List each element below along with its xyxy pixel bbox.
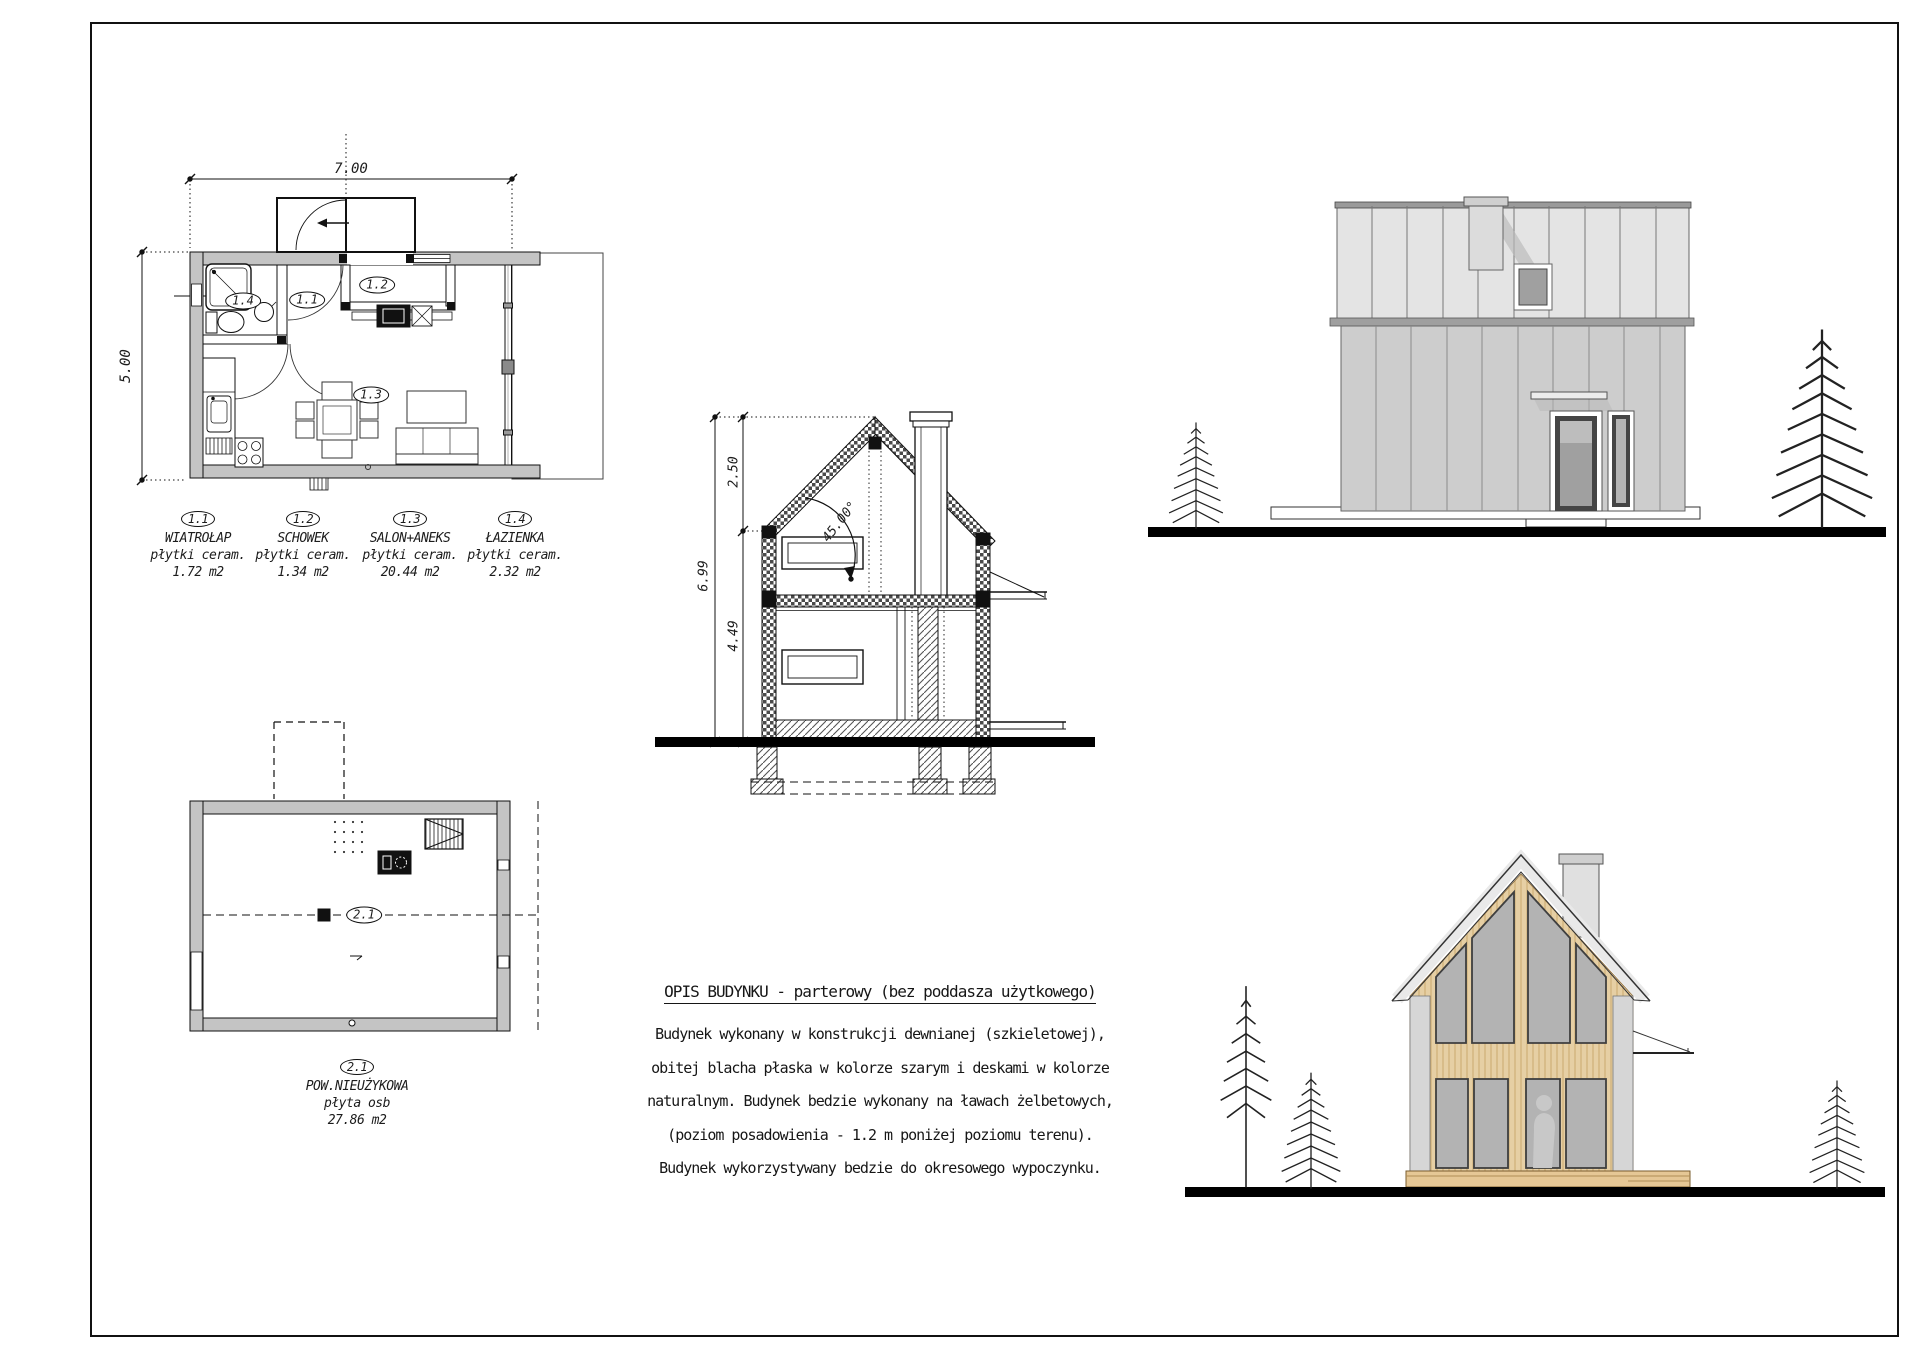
legend-room-area: 27.86 m2 bbox=[282, 1112, 432, 1129]
attic-vent-dots bbox=[332, 818, 368, 858]
entrance-door bbox=[1550, 411, 1602, 511]
section-canopy bbox=[990, 572, 1047, 599]
legend-room-finish: płytki ceram. bbox=[440, 547, 590, 564]
room-tag-storage: 1.2 bbox=[359, 277, 395, 294]
side-awning bbox=[1633, 1031, 1694, 1053]
dim-plan-width: 7.00 bbox=[334, 161, 368, 177]
room-tag-vestibule: 1.1 bbox=[289, 292, 325, 309]
room-tag-bathroom: 1.4 bbox=[225, 293, 261, 310]
description-line: naturalnym. Budynek bedzie wykonany na ł… bbox=[590, 1085, 1170, 1119]
front-elevation bbox=[1185, 854, 1885, 1197]
section-chimney bbox=[910, 412, 952, 597]
legend-room-tag: 1.2 bbox=[286, 511, 320, 527]
legend-room-finish: płyta osb bbox=[282, 1095, 432, 1112]
upper-window bbox=[1514, 264, 1552, 310]
section-walls bbox=[762, 437, 990, 742]
description-line: Budynek wykorzystywany bedzie do okresow… bbox=[590, 1152, 1170, 1186]
description-line: Budynek wykonany w konstrukcji dewnianej… bbox=[590, 1018, 1170, 1052]
tree-icon bbox=[1810, 1080, 1865, 1188]
attic-misc-marks bbox=[349, 956, 362, 1026]
legend-attic: 2.1 POW.NIEUŻYKOWA płyta osb 27.86 m2 bbox=[282, 1059, 432, 1129]
building-description: Budynek wykonany w konstrukcji dewnianej… bbox=[590, 1018, 1170, 1186]
front-deck bbox=[1406, 1171, 1690, 1187]
tree-icon bbox=[1282, 1073, 1341, 1189]
tree-icon bbox=[1772, 330, 1872, 528]
entry-arrow-icon bbox=[317, 219, 349, 228]
section-foundations bbox=[751, 747, 995, 794]
description-line: (poziom posadowienia - 1.2 m poniżej poz… bbox=[590, 1119, 1170, 1153]
dim-section-total: 6.99 bbox=[697, 560, 712, 591]
attic-chimney-projection bbox=[274, 722, 344, 799]
attic-chimney bbox=[378, 851, 411, 874]
legend-room-tag: 1.4 bbox=[498, 511, 532, 527]
elevation-upper-band bbox=[1337, 206, 1689, 321]
door-step bbox=[1526, 519, 1606, 527]
terrace-outline bbox=[512, 253, 603, 479]
dim-plan-height: 5.00 bbox=[118, 349, 134, 383]
legend-room-name: POW.NIEUŻYKOWA bbox=[282, 1078, 432, 1095]
section-ceiling bbox=[776, 595, 976, 611]
tree-icon bbox=[1169, 422, 1223, 528]
legend-room-area: 2.32 m2 bbox=[440, 564, 590, 581]
section-ground-line bbox=[655, 737, 1095, 747]
ground-floor-plan bbox=[137, 134, 603, 490]
legend-room-name: ŁAZIENKA bbox=[440, 530, 590, 547]
legend-room-tag: 1.3 bbox=[393, 511, 427, 527]
door-side-window bbox=[1608, 411, 1634, 511]
attic-plan bbox=[190, 722, 540, 1031]
wood-stove bbox=[377, 305, 432, 327]
room-tag-salon: 1.3 bbox=[353, 387, 389, 404]
cross-section bbox=[655, 412, 1095, 794]
attic-skylight bbox=[425, 819, 463, 849]
eave-band bbox=[1330, 318, 1694, 326]
legend-room-1-4: 1.4 ŁAZIENKA płytki ceram. 2.32 m2 bbox=[440, 511, 590, 581]
front-ground-line bbox=[1185, 1187, 1885, 1197]
dim-section-wall: 4.49 bbox=[727, 620, 742, 651]
tree-icon bbox=[1221, 986, 1272, 1187]
legend-room-tag: 1.1 bbox=[181, 511, 215, 527]
room-tag-attic: 2.1 bbox=[346, 907, 382, 924]
description-title: OPIS BUDYNKU - parterowy (bez poddasza u… bbox=[590, 982, 1170, 1001]
elevation-ground-line bbox=[1148, 527, 1886, 537]
section-deck bbox=[990, 722, 1066, 729]
door-canopy bbox=[1531, 392, 1613, 411]
side-elevation bbox=[1148, 197, 1886, 537]
elevation-ridge-cap bbox=[1335, 202, 1691, 208]
dim-section-ridge: 2.50 bbox=[727, 456, 742, 487]
legend-room-tag: 2.1 bbox=[340, 1059, 374, 1075]
drawing-sheet: 7.00 5.00 2.50 6.99 4.49 45.00° 1.4 1.1 … bbox=[0, 0, 1920, 1357]
description-line: obitej blacha płaska w kolorze szarym i … bbox=[590, 1052, 1170, 1086]
